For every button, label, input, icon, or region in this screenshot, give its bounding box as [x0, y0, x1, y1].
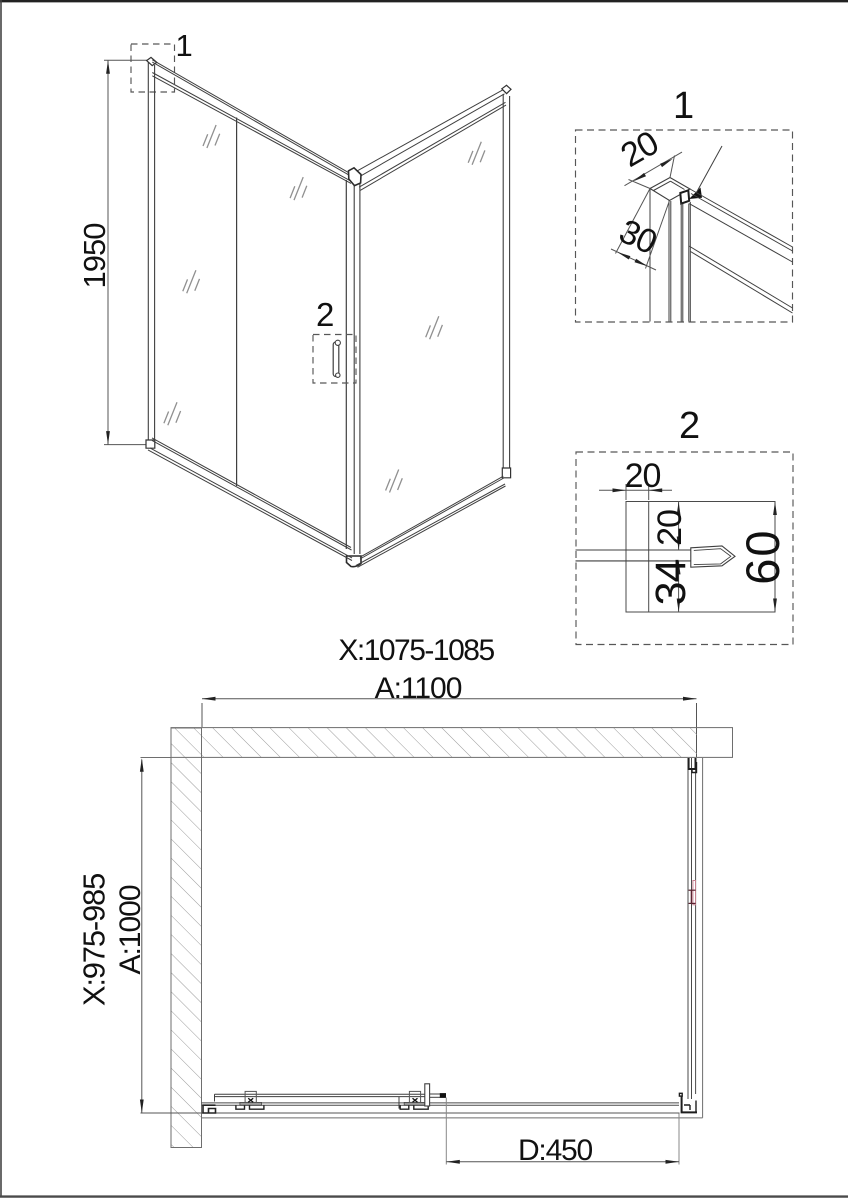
svg-text:1: 1 [176, 28, 193, 63]
svg-text:A:1100: A:1100 [375, 672, 462, 705]
svg-text:2: 2 [679, 405, 700, 447]
svg-text:1950: 1950 [77, 223, 112, 289]
svg-text:X:975-985: X:975-985 [77, 874, 112, 1006]
svg-text:D:450: D:450 [518, 1134, 593, 1167]
svg-text:A:1000: A:1000 [114, 885, 147, 974]
svg-text:20: 20 [614, 124, 664, 175]
svg-text:20: 20 [625, 457, 661, 495]
svg-text:30: 30 [613, 212, 662, 262]
svg-text:34: 34 [647, 560, 695, 606]
svg-text:X:1075-1085: X:1075-1085 [338, 634, 494, 667]
svg-text:20: 20 [651, 510, 689, 546]
svg-text:1: 1 [673, 85, 694, 127]
svg-text:60: 60 [736, 528, 789, 584]
svg-text:2: 2 [316, 296, 334, 333]
